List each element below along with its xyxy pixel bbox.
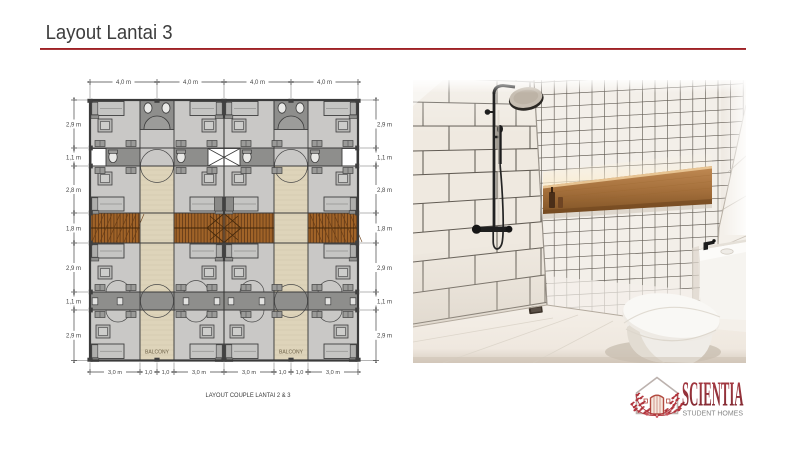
svg-text:2,8 m: 2,8 m	[66, 188, 81, 194]
svg-text:3,0 m: 3,0 m	[326, 370, 340, 376]
svg-text:4,0 m: 4,0 m	[317, 80, 332, 86]
svg-text:2,9 m: 2,9 m	[66, 122, 81, 128]
svg-text:4,0 m: 4,0 m	[183, 80, 198, 86]
svg-text:1,0: 1,0	[279, 370, 287, 376]
svg-text:1,1 m: 1,1 m	[66, 155, 81, 161]
svg-text:BALCONY: BALCONY	[145, 350, 170, 356]
svg-text:SCIENTIA: SCIENTIA	[682, 375, 744, 414]
svg-text:LAYOUT COUPLE LANTAI 2 & 3: LAYOUT COUPLE LANTAI 2 & 3	[206, 392, 292, 399]
svg-text:2,8 m: 2,8 m	[377, 188, 392, 194]
svg-text:STUDENT HOMES: STUDENT HOMES	[683, 411, 744, 418]
svg-text:4,0 m: 4,0 m	[250, 80, 265, 86]
svg-text:1,1 m: 1,1 m	[66, 299, 81, 305]
svg-text:2,9 m: 2,9 m	[377, 266, 392, 272]
svg-text:1,0: 1,0	[296, 370, 304, 376]
svg-text:1,0: 1,0	[162, 370, 170, 376]
svg-text:2,9 m: 2,9 m	[66, 266, 81, 272]
svg-text:Layout Lantai 3: Layout Lantai 3	[46, 21, 173, 44]
svg-text:1,1 m: 1,1 m	[377, 155, 392, 161]
svg-text:1,1 m: 1,1 m	[377, 299, 392, 305]
svg-text:1,0: 1,0	[145, 370, 153, 376]
svg-text:1,8 m: 1,8 m	[66, 226, 81, 232]
svg-text:3,0 m: 3,0 m	[192, 370, 206, 376]
svg-text:3,0 m: 3,0 m	[242, 370, 256, 376]
svg-text:2,9 m: 2,9 m	[66, 334, 81, 340]
svg-text:BALCONY: BALCONY	[279, 350, 304, 356]
svg-text:1,8 m: 1,8 m	[377, 226, 392, 232]
svg-text:3,0 m: 3,0 m	[108, 370, 122, 376]
svg-text:2,9 m: 2,9 m	[377, 122, 392, 128]
svg-text:2,9 m: 2,9 m	[377, 334, 392, 340]
svg-text:4,0 m: 4,0 m	[116, 80, 131, 86]
